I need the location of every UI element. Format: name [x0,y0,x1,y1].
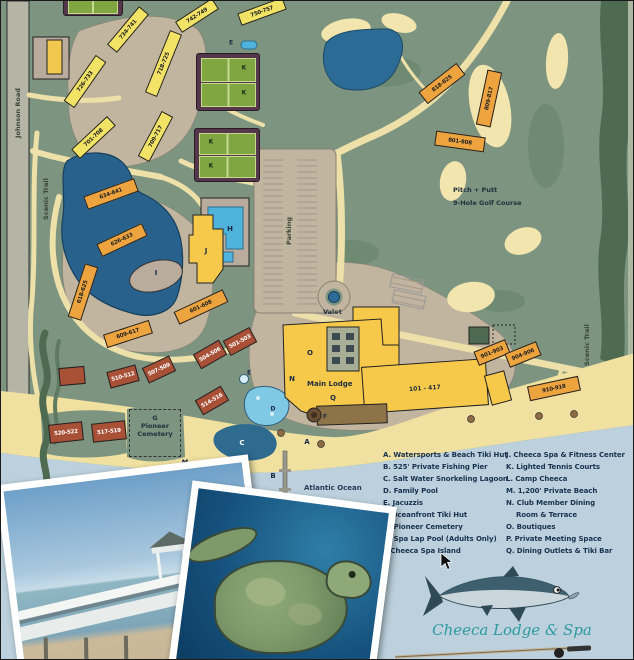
pier-piling [84,638,89,660]
tennis-court-pad-upper [196,53,260,111]
map-letter-o: O [307,349,313,357]
map-letter-f: F [323,414,327,421]
legend-item: E. Jacuzzis [383,497,508,509]
legend-column-1: A. Watersports & Beach Tiki Hut B. 525' … [383,449,508,557]
tennis-court-pad-top [63,0,123,16]
map-letter-i: I [155,269,158,277]
sea-turtle-photo [167,480,397,660]
pioneer-cemetery: G Pioneer Cemetery [129,409,181,457]
legend-item: K. Lighted Tennis Courts [506,461,625,473]
legend-item: L. Camp Cheeca [506,473,625,485]
map-letter-k2: K [242,90,247,97]
legend-item: F. Oceanfront Tiki Hut [383,509,508,521]
map-letter-k3: K [209,139,214,146]
legend-item-wrap: Room & Terrace [506,509,625,521]
map-letter-e-pool: E [247,370,251,377]
legend-item: N. Club Member Dining [506,497,625,509]
golf-label-line1: Pitch + Putt [453,186,497,194]
legend-item: A. Watersports & Beach Tiki Hut [383,449,508,461]
tennis-court-pad-lower [194,128,260,182]
map-letter-n: N [289,375,295,383]
legend-column-2: J. Cheeca Spa & Fitness Center K. Lighte… [506,449,625,557]
legend-item: H. Spa Lap Pool (Adults Only) [383,533,508,545]
map-letter-b: B [270,472,275,480]
map-letter-h: H [227,225,233,233]
legend-item: O. Boutiques [506,521,625,533]
legend-item: J. Cheeca Spa & Fitness Center [506,449,625,461]
building-520-522: 520-522 [48,421,84,443]
building-maintenance [58,366,85,386]
legend-item: P. Private Meeting Space [506,533,625,545]
atlantic-ocean-label: Atlantic Ocean [304,484,362,492]
golf-label-line2: 9-Hole Golf Course [453,199,522,207]
legend-item: Q. Dining Outlets & Tiki Bar [506,545,625,557]
map-letter-c: C [239,439,244,447]
tarpon-fish-illustration [421,564,581,626]
building-517-519: 517-519 [91,420,127,442]
parking-label: Parking [285,217,293,245]
legend-item: D. Family Pool [383,485,508,497]
resort-map: 750-757 742-749 734-741 726-733 718-725 … [0,0,634,660]
map-letter-d: D [271,406,276,413]
map-letter-k1: K [242,65,247,72]
scenic-trail-left-label: Scenic Trail [42,178,50,220]
fishing-rod-illustration [391,641,611,660]
legend-item: G. Pioneer Cemetery [383,521,508,533]
legend-item: B. 525' Private Fishing Pier [383,461,508,473]
johnson-road-label: Johnson Road [14,88,22,138]
scenic-trail-right-label: Scenic Trail [583,324,591,366]
pier-piling [44,637,49,660]
map-letter-e-north: E [229,40,233,47]
map-letter-k4: K [209,163,214,170]
cheeca-lodge-spa-logo: Cheeca Lodge & Spa [417,621,607,639]
map-letter-j: J [205,247,208,255]
valet-label: Valet [323,308,342,316]
map-letter-q: Q [330,394,336,402]
cemetery-letter-g: G [130,414,180,422]
map-letter-a: A [304,438,309,446]
pier-piling [124,636,129,660]
legend-item: C. Salt Water Snorkeling Lagoon [383,473,508,485]
legend-item: M. 1,200' Private Beach [506,485,625,497]
main-lodge-label: Main Lodge [307,380,353,388]
